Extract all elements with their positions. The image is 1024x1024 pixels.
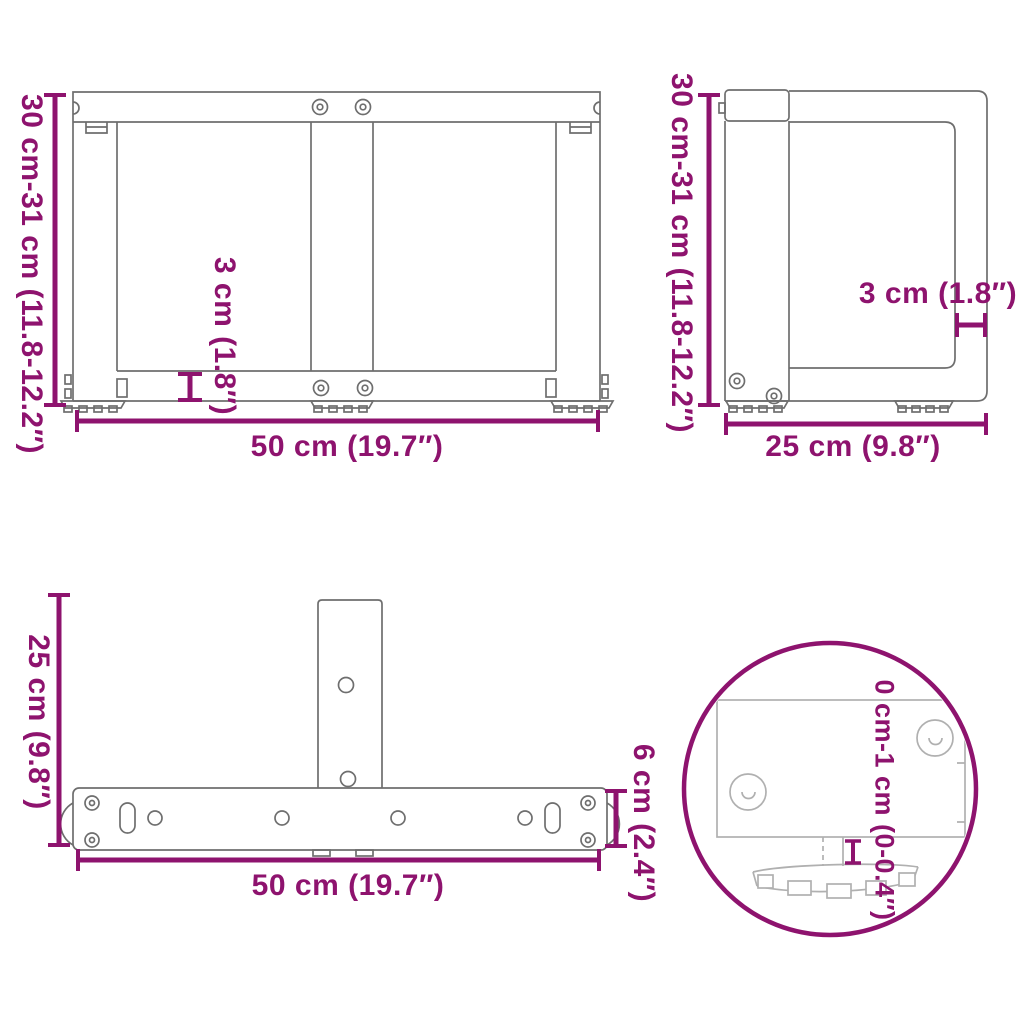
front-bar-thickness-label: 3 cm (1.8″) bbox=[209, 257, 239, 415]
dimension-diagram: 30 cm-31 cm (11.8-12.2″) 3 cm (1.8″) 50 … bbox=[0, 0, 1024, 1024]
side-panel-thickness-label: 3 cm (1.8″) bbox=[859, 279, 1017, 309]
front-view-drawing bbox=[61, 92, 613, 412]
side-height-label: 30 cm-31 cm (11.8-12.2″) bbox=[666, 73, 696, 433]
top-depth-label: 25 cm (9.8″) bbox=[23, 634, 53, 809]
foot-detail-dimension bbox=[845, 841, 861, 863]
foot-adjustment-label: 0 cm-1 cm (0-0.4″) bbox=[871, 679, 898, 920]
top-view-drawing bbox=[61, 600, 620, 856]
side-view-dimensions bbox=[698, 95, 986, 435]
front-width-label: 50 cm (19.7″) bbox=[251, 432, 444, 462]
foot-detail-drawing bbox=[684, 643, 976, 935]
top-bar-width-label: 6 cm (2.4″) bbox=[628, 744, 658, 902]
side-depth-label: 25 cm (9.8″) bbox=[765, 432, 940, 462]
side-view-drawing bbox=[719, 90, 987, 412]
top-width-label: 50 cm (19.7″) bbox=[252, 871, 445, 901]
front-height-label: 30 cm-31 cm (11.8-12.2″) bbox=[16, 94, 46, 454]
